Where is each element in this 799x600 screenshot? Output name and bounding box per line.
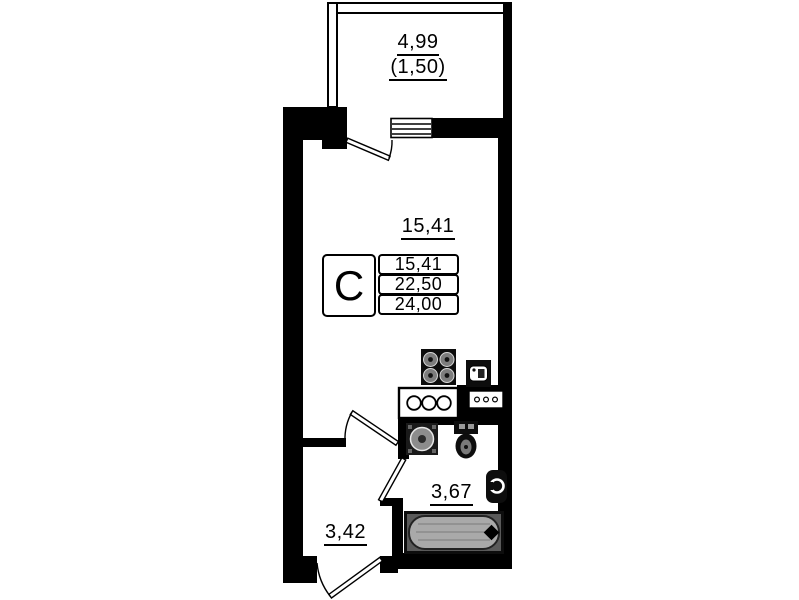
room-area-value: 15,41 <box>401 215 456 240</box>
bathroom-area-value: 3,67 <box>430 481 473 506</box>
hallway-area-value: 3,42 <box>324 521 367 546</box>
floor-plan: 4,99 (1,50) 15,41 С 15,41 22,50 24,00 3,… <box>0 0 799 600</box>
legend-row-living-area: 15,41 <box>378 254 459 275</box>
vent-grille-icon <box>469 391 503 408</box>
room-area-label: 15,41 <box>398 215 458 240</box>
washbasin-icon <box>406 423 438 455</box>
legend-row-total-area: 22,50 <box>378 274 459 295</box>
toilet-icon <box>454 421 478 459</box>
balcony-area-reduced-value: (1,50) <box>389 56 446 81</box>
towel-warmer-icon <box>486 470 507 503</box>
apartment-legend-table: С 15,41 22,50 24,00 <box>322 254 459 317</box>
stove-icon <box>421 349 456 385</box>
legend-row-total-area-with-balcony: 24,00 <box>378 294 459 315</box>
bathroom-area-label: 3,67 <box>424 481 479 506</box>
hallway-area-label: 3,42 <box>318 521 373 546</box>
apartment-type-letter: С <box>322 254 376 317</box>
kitchen-counter <box>399 388 458 418</box>
balcony-area-label: 4,99 (1,50) <box>378 31 458 81</box>
balcony-area-value: 4,99 <box>397 31 440 56</box>
legend-rows: 15,41 22,50 24,00 <box>378 254 459 317</box>
bathtub-icon <box>404 511 504 554</box>
small-appliance-icon <box>466 360 491 387</box>
window-icon <box>391 119 432 138</box>
